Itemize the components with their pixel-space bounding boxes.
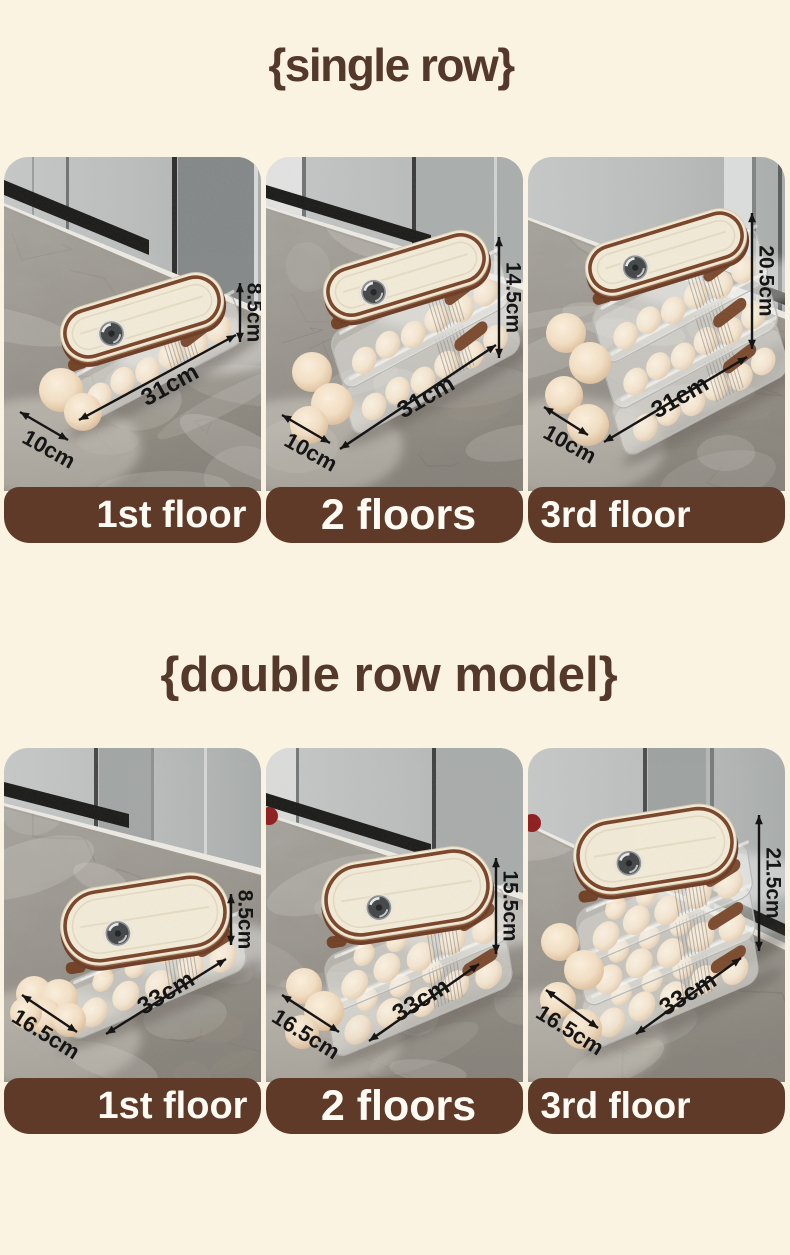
svg-text:21.5cm: 21.5cm: [762, 847, 785, 918]
svg-text:14.5cm: 14.5cm: [502, 262, 524, 333]
svg-text:20.5cm: 20.5cm: [755, 245, 778, 316]
svg-text:8.5cm: 8.5cm: [243, 283, 262, 343]
svg-text:15.5cm: 15.5cm: [499, 870, 522, 941]
svg-text:8.5cm: 8.5cm: [234, 890, 257, 950]
